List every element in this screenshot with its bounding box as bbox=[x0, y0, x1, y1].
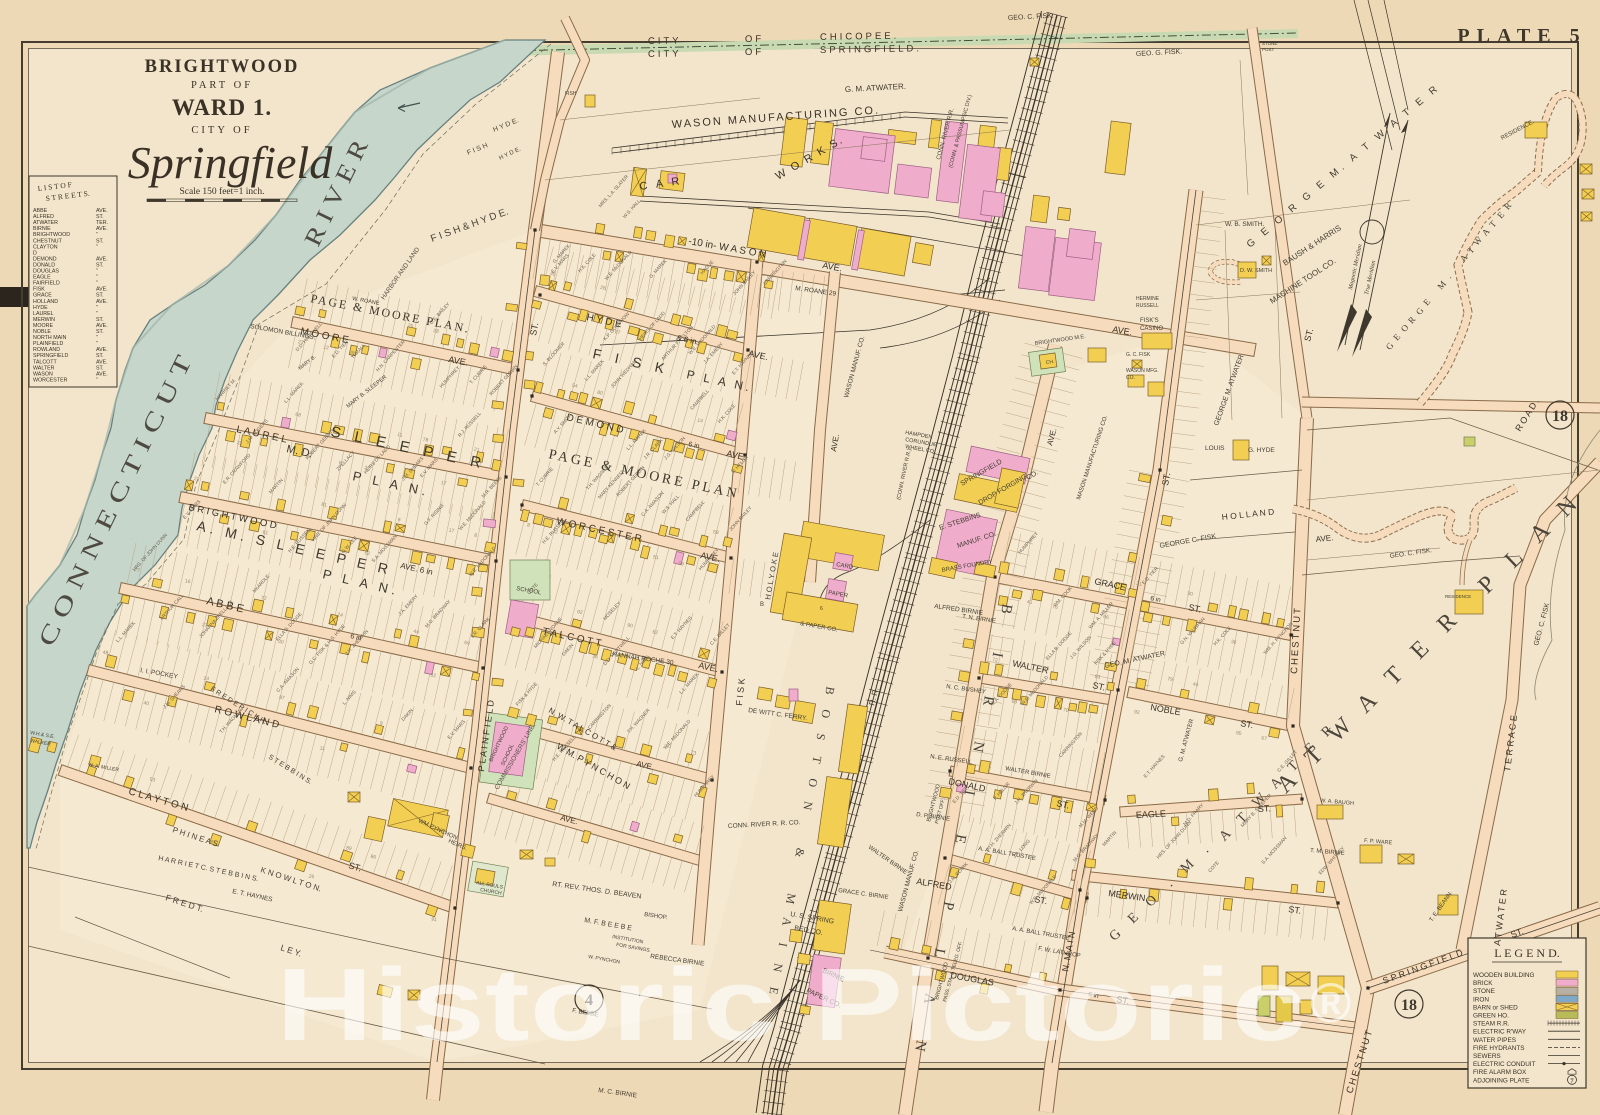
svg-text:STONE: STONE bbox=[1262, 41, 1277, 46]
svg-text:EAGLE: EAGLE bbox=[1136, 808, 1166, 820]
svg-text:ELECTRIC R'WAY: ELECTRIC R'WAY bbox=[1473, 1029, 1527, 1036]
svg-text:CHICOPEE.: CHICOPEE. bbox=[820, 31, 899, 43]
svg-text:18: 18 bbox=[1401, 997, 1417, 1014]
svg-text:PLATE 5: PLATE 5 bbox=[1457, 25, 1586, 47]
svg-text:FIRE ALARM BOX: FIRE ALARM BOX bbox=[1473, 1069, 1527, 1076]
svg-text:OF: OF bbox=[745, 34, 764, 45]
svg-text:WORCESTER: WORCESTER bbox=[33, 377, 68, 383]
svg-text:OF: OF bbox=[745, 47, 764, 58]
svg-text:FIRE HYDRANTS: FIRE HYDRANTS bbox=[1473, 1045, 1524, 1052]
svg-text:G. C. FISK: G. C. FISK bbox=[1126, 352, 1151, 358]
svg-text:HERMINE: HERMINE bbox=[1136, 296, 1160, 302]
svg-text:Historic Pictoric: Historic Pictoric bbox=[276, 947, 1306, 1062]
svg-text:AVE.: AVE. bbox=[1315, 533, 1333, 544]
svg-text:SPRINGFIELD.: SPRINGFIELD. bbox=[820, 43, 922, 56]
svg-text:Springfield: Springfield bbox=[128, 137, 333, 188]
svg-text:CITY: CITY bbox=[648, 35, 682, 47]
svg-text:LOUIS: LOUIS bbox=[1205, 445, 1225, 452]
svg-text:W. B. SMITH.: W. B. SMITH. bbox=[1225, 221, 1265, 228]
svg-text:ELECTRIC CONDUIT: ELECTRIC CONDUIT bbox=[1473, 1061, 1536, 1068]
svg-text:CITY OF: CITY OF bbox=[191, 125, 252, 136]
svg-text:G. HYDE: G. HYDE bbox=[1248, 447, 1275, 454]
svg-text:WARD 1.: WARD 1. bbox=[172, 95, 272, 120]
svg-text:STONE: STONE bbox=[1473, 988, 1495, 995]
svg-text:CO.: CO. bbox=[1126, 375, 1135, 381]
svg-text:RESIDENCE: RESIDENCE bbox=[1445, 594, 1471, 599]
svg-text:STEAM R.R.: STEAM R.R. bbox=[1473, 1021, 1510, 1028]
svg-text:IRON: IRON bbox=[1473, 996, 1489, 1003]
svg-text:”: ” bbox=[96, 377, 98, 383]
svg-text:SEWERS: SEWERS bbox=[1473, 1053, 1501, 1060]
svg-text:®: ® bbox=[1310, 971, 1351, 1034]
svg-text:ST.: ST. bbox=[1288, 904, 1302, 916]
svg-text:”: ” bbox=[96, 244, 98, 250]
svg-text:GREEN HO.: GREEN HO. bbox=[1473, 1013, 1509, 1020]
svg-text:WATER PIPES: WATER PIPES bbox=[1473, 1037, 1516, 1044]
svg-text:FISK’S: FISK’S bbox=[1140, 318, 1159, 324]
svg-text:ADJOINING PLATE: ADJOINING PLATE bbox=[1473, 1077, 1529, 1084]
svg-text:6: 6 bbox=[820, 606, 823, 612]
svg-text:CH.: CH. bbox=[1045, 359, 1054, 366]
svg-text:WOODEN BUILDING: WOODEN BUILDING bbox=[1473, 972, 1534, 979]
svg-text:BRIGHTWOOD: BRIGHTWOOD bbox=[145, 57, 300, 77]
svg-text:FISH: FISH bbox=[565, 91, 577, 97]
svg-text:B: B bbox=[760, 602, 764, 608]
svg-text:Scale 150 feet=1 inch.: Scale 150 feet=1 inch. bbox=[179, 186, 264, 197]
svg-text:RUSSELL: RUSSELL bbox=[1136, 303, 1159, 309]
svg-text:BRICK: BRICK bbox=[1473, 980, 1493, 987]
svg-text:CITY: CITY bbox=[648, 48, 682, 60]
svg-text:BARN or SHED: BARN or SHED bbox=[1473, 1004, 1518, 1011]
svg-text:CASINO: CASINO bbox=[1140, 326, 1163, 332]
svg-text:D. W. SMITH: D. W. SMITH bbox=[1240, 268, 1272, 274]
svg-text:PART OF: PART OF bbox=[191, 80, 253, 91]
svg-text:WASON MFG.: WASON MFG. bbox=[1126, 368, 1159, 374]
svg-text:L E G E N D.: L E G E N D. bbox=[1494, 946, 1560, 960]
svg-text:POST: POST bbox=[1262, 47, 1275, 52]
svg-text:18: 18 bbox=[1552, 408, 1568, 425]
